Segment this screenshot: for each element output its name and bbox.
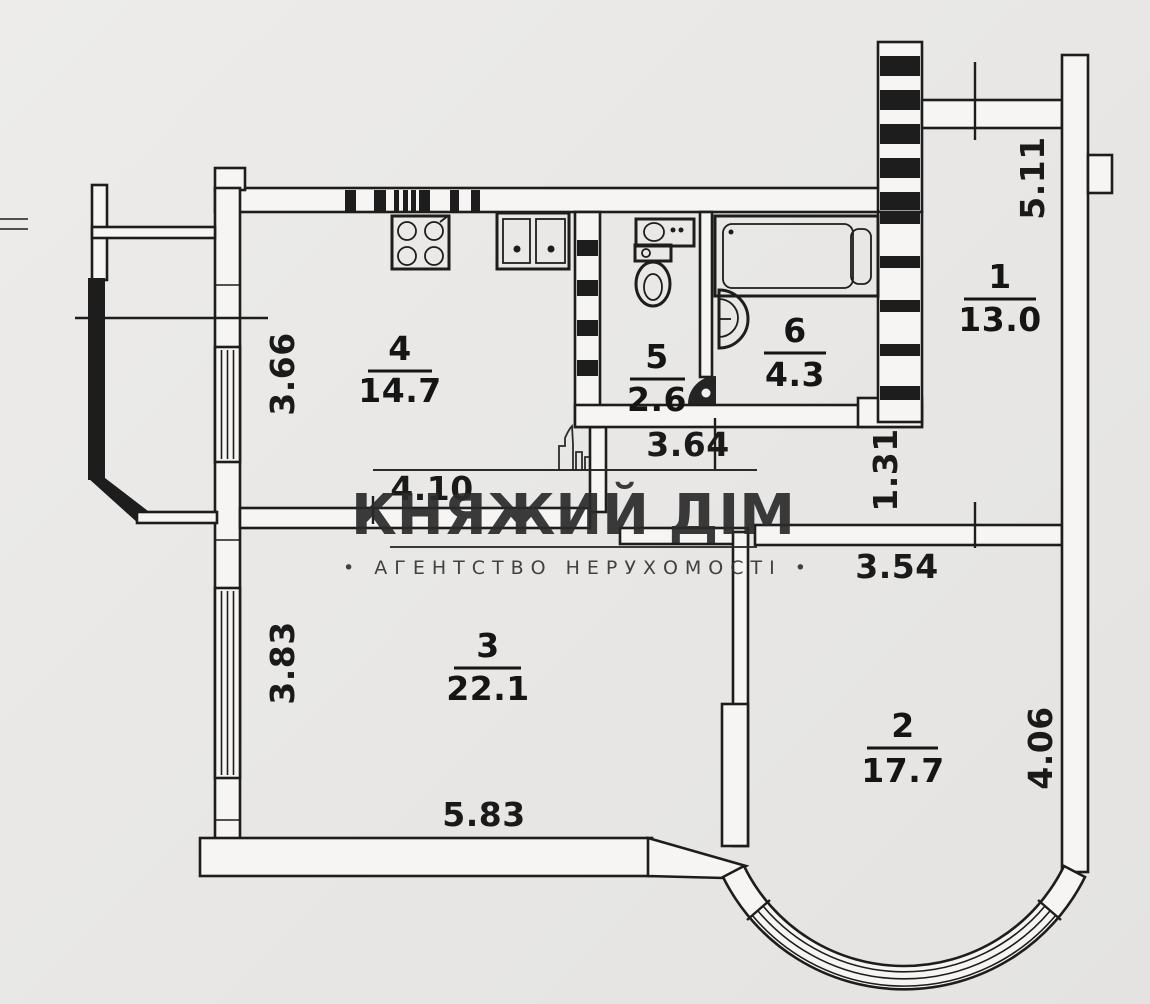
agency-logo: КНЯЖИЙ ДІМ • АГЕНТСТВО НЕРУХОМОСТІ • [343,426,813,579]
svg-text:17.7: 17.7 [861,751,944,790]
room-label-3: 3 22.1 [446,626,529,708]
svg-text:4.3: 4.3 [765,355,825,394]
window-left-upper [215,347,240,462]
room-label-1: 1 13.0 [958,257,1041,339]
svg-text:2.6: 2.6 [627,380,687,419]
svg-text:13.0: 13.0 [958,300,1041,339]
floorplan-drawing: 3.66 3.83 4.10 3.64 1.31 3.54 5.11 5.83 … [0,0,1150,1004]
bath-washbasin-icon [719,290,748,348]
dim-room3-window: 3.83 [263,621,302,704]
dimension-ticks [75,62,975,548]
bay-window-wall [723,866,1085,989]
svg-text:6: 6 [783,311,806,350]
svg-text:2: 2 [891,706,914,745]
dim-loggia-right: 5.11 [1013,136,1052,219]
room-label-6: 6 4.3 [764,311,826,394]
agency-tagline: • АГЕНТСТВО НЕРУХОМОСТІ • [343,557,813,579]
stove-icon [392,216,449,269]
svg-text:22.1: 22.1 [446,669,529,708]
dim-room2-top: 3.54 [855,547,938,586]
building-skyline-icon [559,426,590,470]
room-label-4: 4 14.7 [358,329,441,410]
dim-corridor: 1.31 [866,428,905,511]
svg-text:3: 3 [476,626,499,665]
svg-text:1: 1 [988,257,1011,296]
window-left-lower [215,588,240,778]
room-label-5: 5 2.6 [627,337,687,419]
floorplan-scan: 3.66 3.83 4.10 3.64 1.31 3.54 5.11 5.83 … [0,0,1150,1004]
dim-sanitary-width: 3.64 [646,425,729,464]
svg-text:4: 4 [388,329,411,368]
svg-text:5: 5 [645,337,668,376]
toilet-icon [635,245,671,306]
door-swing-icon [688,376,716,404]
washbasin-icon [636,219,694,246]
kitchen-sink-icon [497,213,569,269]
bathtub-icon [715,216,878,296]
dim-room3-width: 5.83 [442,795,525,834]
room-label-2: 2 17.7 [861,706,944,790]
dim-room2-right: 4.06 [1021,706,1060,789]
svg-text:14.7: 14.7 [358,371,441,410]
dim-balcony-left: 3.66 [263,332,302,415]
agency-name: КНЯЖИЙ ДІМ [351,482,795,548]
